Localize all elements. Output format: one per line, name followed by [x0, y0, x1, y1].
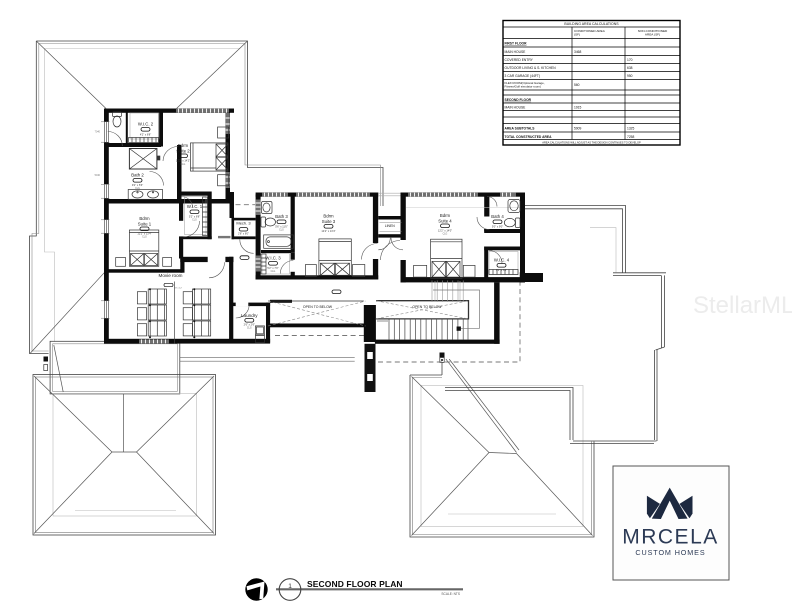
svg-text:5'6" x 11'0": 5'6" x 11'0"	[275, 225, 288, 229]
svg-text:5'2" x 5'6": 5'2" x 5'6"	[496, 268, 507, 272]
svg-text:OPEN TO BELOW: OPEN TO BELOW	[303, 305, 333, 309]
svg-text:170: 170	[627, 58, 633, 62]
svg-text:3 CAR GARAGE (44FT): 3 CAR GARAGE (44FT)	[505, 74, 541, 78]
svg-text:CLG: CLG	[181, 164, 186, 166]
svg-text:3468: 3468	[574, 50, 582, 54]
svg-text:MAIN HOUSE: MAIN HOUSE	[505, 50, 527, 54]
svg-text:2'6" x 2'6": 2'6" x 2'6"	[244, 323, 255, 327]
svg-text:5909: 5909	[574, 127, 582, 131]
svg-text:Bdrm: Bdrm	[178, 143, 189, 148]
svg-text:CLG: CLG	[192, 220, 197, 222]
svg-text:560: 560	[574, 83, 580, 87]
svg-text:SECOND FLOOR: SECOND FLOOR	[505, 98, 532, 102]
svg-text:Bath 4: Bath 4	[491, 214, 504, 219]
svg-text:Mech. 3: Mech. 3	[236, 221, 251, 226]
svg-text:AREA CALCULATIONS WILL ADJUST: AREA CALCULATIONS WILL ADJUST AS THE DES…	[542, 141, 641, 145]
svg-text:14'2" x 13'4": 14'2" x 13'4"	[321, 229, 335, 233]
svg-text:Suite 3: Suite 3	[322, 219, 336, 224]
svg-text:OUTDOOR LIVING & S. KITCHEN: OUTDOOR LIVING & S. KITCHEN	[505, 66, 557, 70]
svg-text:18' x 12': 18' x 12'	[174, 288, 183, 290]
svg-text:CLG: CLG	[142, 237, 147, 239]
svg-text:AREA SUBTOTALS: AREA SUBTOTALS	[505, 127, 536, 131]
svg-text:1325: 1325	[627, 127, 635, 131]
svg-text:MRCELA: MRCELA	[622, 526, 719, 549]
svg-text:W.I.C. 3: W.I.C. 3	[265, 256, 281, 261]
svg-text:1915: 1915	[574, 106, 582, 110]
svg-text:FIRST FLOOR: FIRST FLOOR	[505, 42, 528, 46]
svg-text:Suite 4: Suite 4	[438, 219, 452, 224]
svg-text:2'6" x 6'0": 2'6" x 6'0"	[238, 233, 249, 236]
svg-text:5'2" x 7'0": 5'2" x 7'0"	[267, 266, 278, 270]
svg-text:Bdrm: Bdrm	[139, 216, 150, 221]
svg-text:MAIN HOUSE: MAIN HOUSE	[505, 106, 527, 110]
svg-text:SCALE: NTS: SCALE: NTS	[441, 592, 460, 596]
svg-text:OPEN TO BELOW: OPEN TO BELOW	[412, 305, 442, 309]
svg-text:9'2" x 5'6": 9'2" x 5'6"	[132, 183, 143, 187]
svg-text:950: 950	[627, 74, 633, 78]
svg-text:Suite 1: Suite 1	[138, 222, 152, 227]
svg-text:CUSTOM HOMES: CUSTOM HOMES	[635, 548, 705, 557]
svg-text:12'2" x 14'2": 12'2" x 14'2"	[176, 159, 190, 163]
svg-text:CLG: CLG	[443, 234, 448, 236]
svg-text:CLG: CLG	[247, 328, 252, 330]
svg-text:Fitness/Golf simulator room): Fitness/Golf simulator room)	[505, 85, 541, 89]
svg-text:12'2" x 13'4": 12'2" x 13'4"	[137, 232, 151, 236]
svg-text:Movie room: Movie room	[159, 273, 183, 278]
svg-text:638: 638	[627, 66, 633, 70]
svg-text:W.I.C. 2: W.I.C. 2	[138, 122, 154, 127]
svg-text:AREA (SF): AREA (SF)	[645, 33, 660, 37]
svg-text:Bdrm: Bdrm	[323, 214, 334, 219]
svg-text:W.I.C. 4: W.I.C. 4	[494, 258, 510, 263]
svg-text:5'0" x 9'0": 5'0" x 9'0"	[492, 225, 503, 229]
svg-text:Bath 3: Bath 3	[275, 214, 288, 219]
svg-text:(SF): (SF)	[574, 33, 580, 37]
svg-text:12'2" x 14'0": 12'2" x 14'0"	[438, 229, 452, 233]
svg-text:COVERED ENTRY: COVERED ENTRY	[505, 58, 534, 62]
svg-text:7040: 7040	[95, 131, 101, 134]
svg-text:1: 1	[288, 583, 292, 590]
svg-text:Bdrm: Bdrm	[440, 213, 451, 218]
svg-text:5040: 5040	[95, 174, 101, 177]
svg-text:7258: 7258	[627, 135, 635, 139]
svg-text:LINEN: LINEN	[385, 224, 396, 228]
svg-text:W.I.C. 1: W.I.C. 1	[187, 204, 203, 209]
svg-text:CLG: CLG	[271, 271, 276, 273]
svg-text:BUILDING AREA CALCULATIONS: BUILDING AREA CALCULATIONS	[564, 22, 619, 26]
svg-text:StellarMLS: StellarMLS	[693, 292, 792, 319]
svg-text:Suite 2: Suite 2	[176, 149, 190, 154]
svg-text:4'2" x 6'8": 4'2" x 6'8"	[140, 133, 151, 137]
svg-text:Laundry: Laundry	[241, 313, 258, 318]
svg-text:CLG: CLG	[279, 230, 284, 232]
svg-text:TOTAL CONSTRUCTED AREA: TOTAL CONSTRUCTED AREA	[505, 135, 553, 139]
svg-text:SECOND FLOOR PLAN: SECOND FLOOR PLAN	[307, 579, 403, 589]
svg-text:Bath 2: Bath 2	[131, 173, 144, 178]
svg-text:CLG: CLG	[135, 188, 140, 190]
svg-text:5'2" x 6'8": 5'2" x 6'8"	[189, 215, 200, 219]
